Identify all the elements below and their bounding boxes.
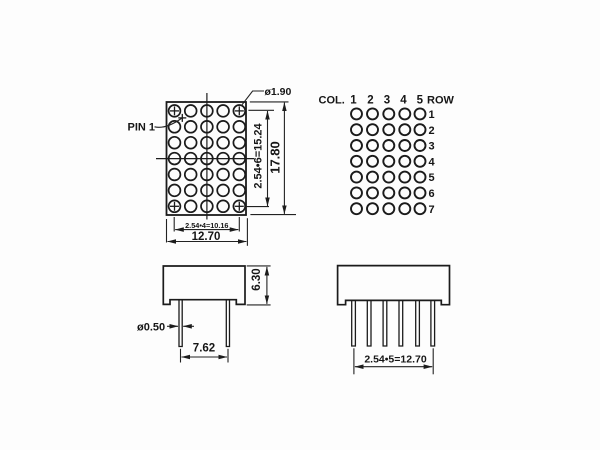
svg-text:7: 7 xyxy=(429,204,435,216)
svg-text:1: 1 xyxy=(350,95,357,107)
svg-text:4: 4 xyxy=(400,95,407,107)
svg-text:6: 6 xyxy=(429,188,435,200)
svg-text:5: 5 xyxy=(429,172,435,184)
svg-text:ROW: ROW xyxy=(427,95,455,107)
svg-text:17.80: 17.80 xyxy=(268,141,283,174)
svg-text:3: 3 xyxy=(429,141,435,153)
svg-text:PIN 1: PIN 1 xyxy=(128,122,156,134)
svg-text:2.54•4=10.16: 2.54•4=10.16 xyxy=(185,221,228,230)
svg-text:2: 2 xyxy=(429,125,435,137)
svg-text:1: 1 xyxy=(429,109,435,121)
svg-text:2.54•6=15.24: 2.54•6=15.24 xyxy=(253,122,265,188)
svg-text:ø0.50: ø0.50 xyxy=(137,322,165,334)
svg-text:2: 2 xyxy=(367,95,373,107)
svg-text:3: 3 xyxy=(384,95,390,107)
svg-text:6.30: 6.30 xyxy=(251,268,263,290)
svg-text:12.70: 12.70 xyxy=(192,231,221,243)
svg-text:4: 4 xyxy=(429,156,436,168)
svg-text:7.62: 7.62 xyxy=(193,343,215,355)
svg-text:5: 5 xyxy=(417,95,424,107)
svg-text:ø1.90: ø1.90 xyxy=(265,86,292,98)
svg-text:COL.: COL. xyxy=(319,95,345,107)
svg-text:2.54•5=12.70: 2.54•5=12.70 xyxy=(364,354,427,366)
